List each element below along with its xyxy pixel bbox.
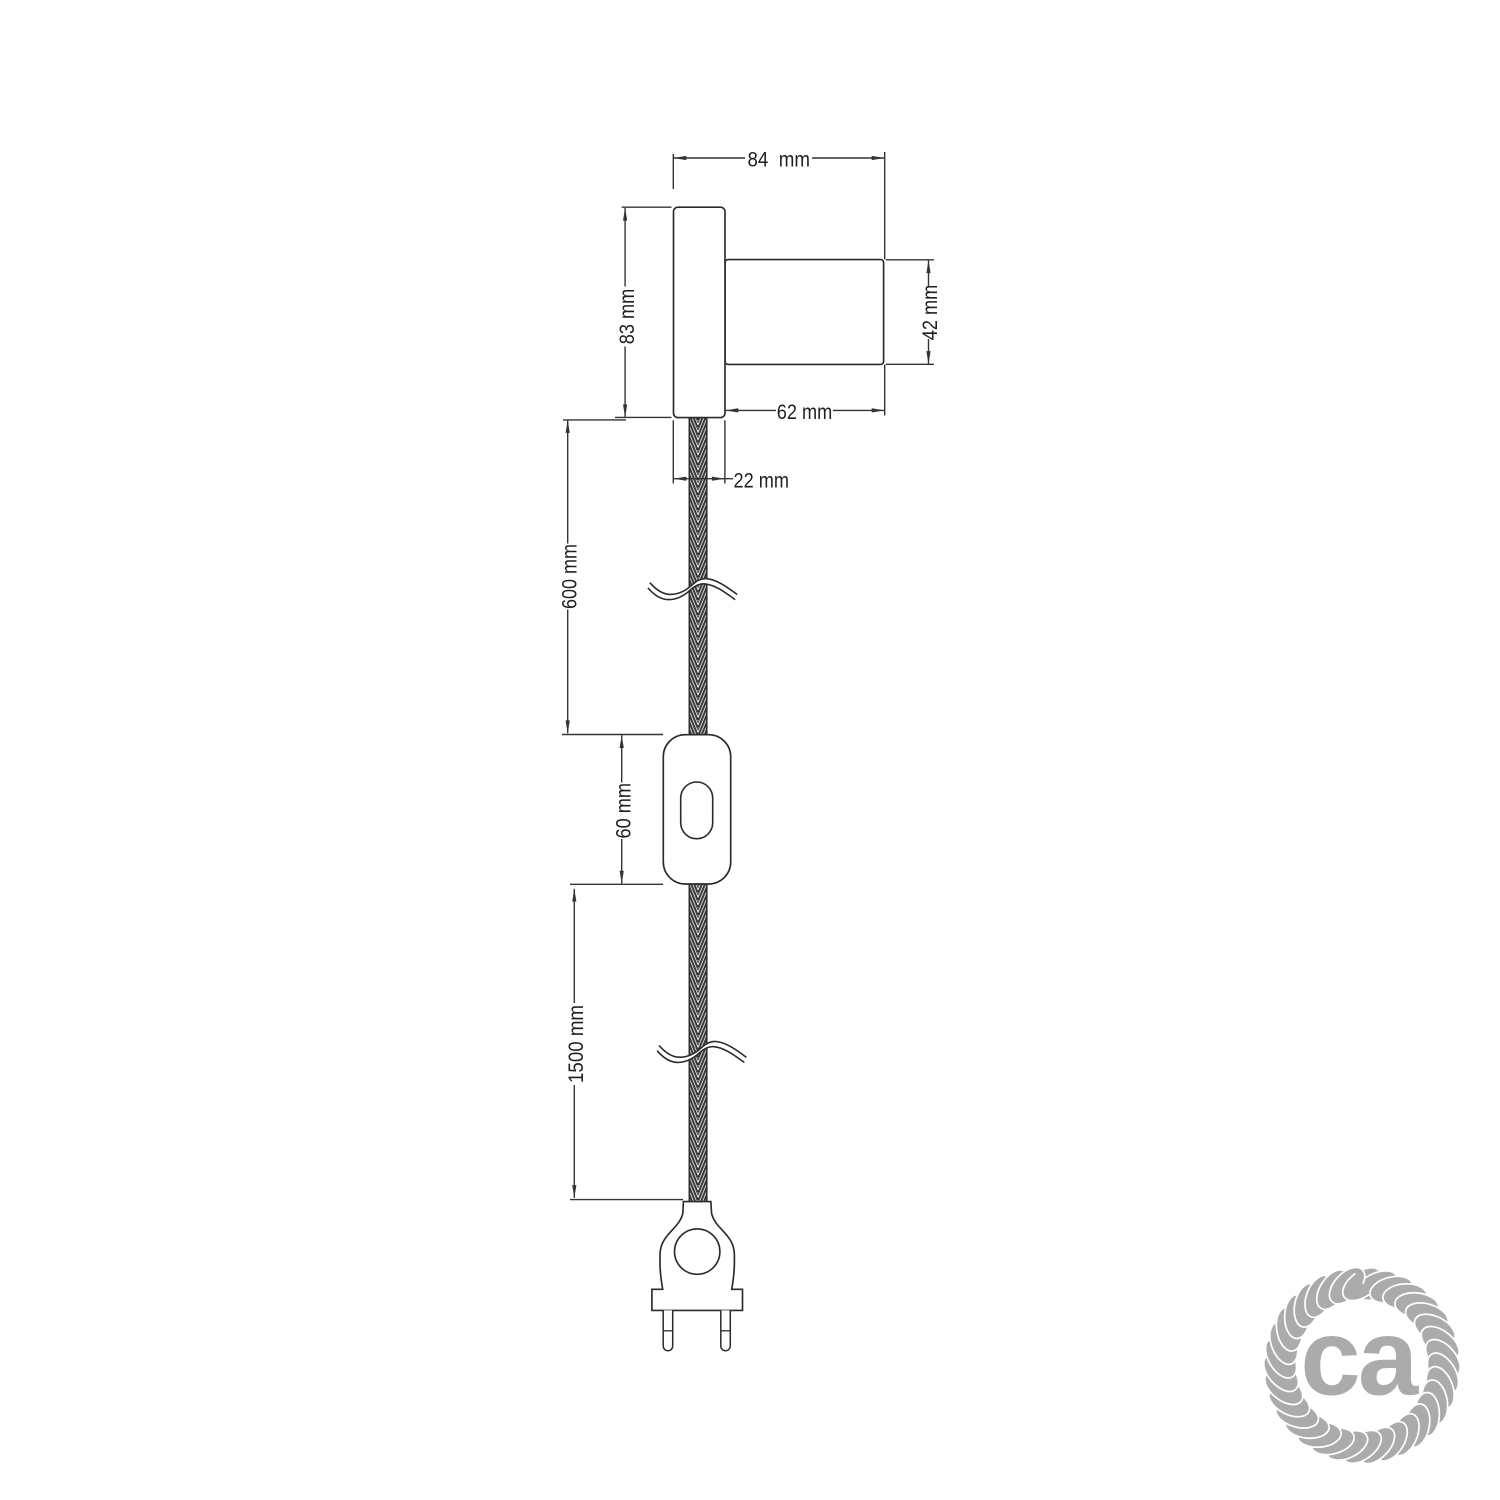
svg-text:ca: ca — [1300, 1297, 1419, 1418]
svg-text:84 mm: 84 mm — [747, 148, 810, 172]
svg-text:60 mm: 60 mm — [611, 783, 635, 839]
svg-text:1500 mm: 1500 mm — [564, 1005, 588, 1083]
svg-text:62 mm: 62 mm — [777, 400, 833, 424]
svg-text:600 mm: 600 mm — [557, 544, 581, 609]
svg-text:83 mm: 83 mm — [615, 289, 639, 345]
svg-text:22 mm: 22 mm — [734, 468, 790, 492]
svg-text:42 mm: 42 mm — [918, 285, 942, 341]
